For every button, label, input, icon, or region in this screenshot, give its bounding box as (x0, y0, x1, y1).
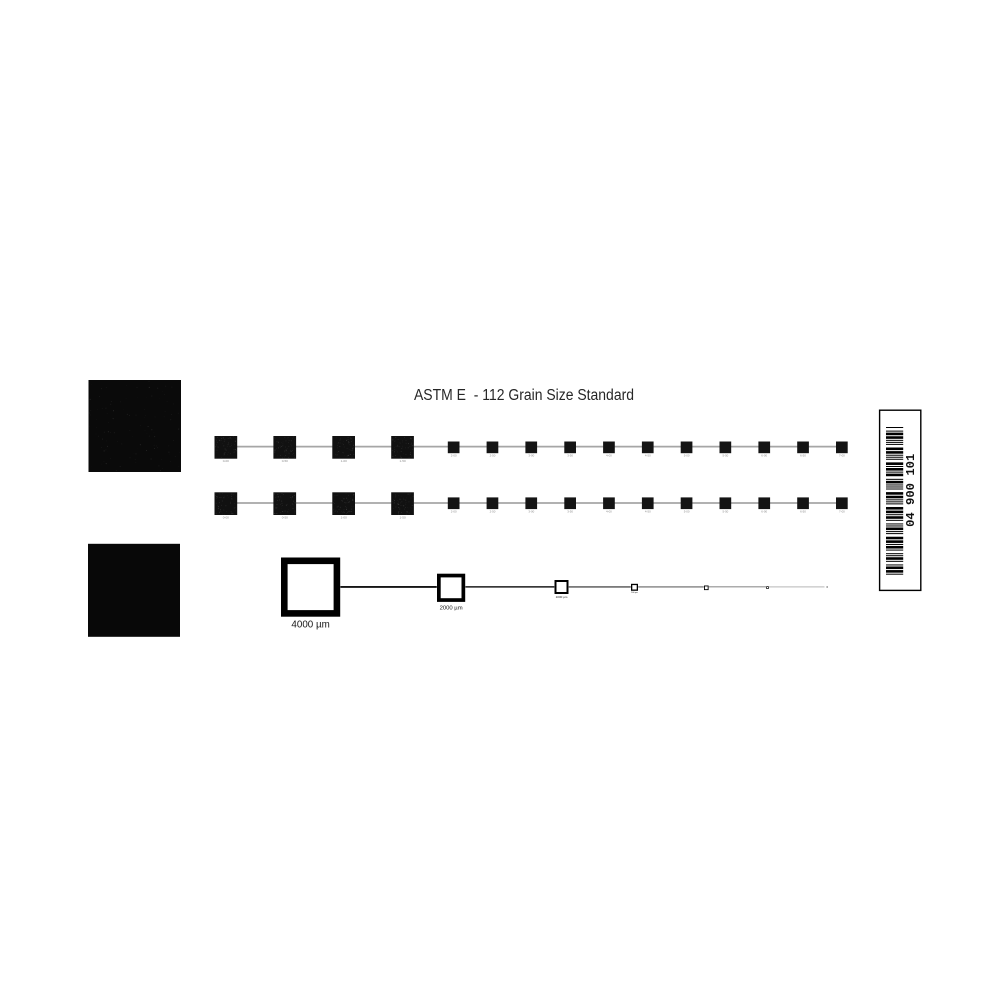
svg-text:6-50: 6-50 (800, 509, 806, 513)
svg-text:3-50: 3-50 (567, 509, 573, 513)
svg-text:7-00: 7-00 (839, 509, 845, 513)
svg-text:2-50: 2-50 (490, 453, 496, 457)
svg-text:0-00: 0-00 (223, 459, 229, 463)
svg-text:7-00: 7-00 (839, 453, 845, 457)
svg-text:1-50: 1-50 (399, 459, 405, 463)
svg-text:500 µm: 500 µm (631, 592, 638, 594)
svg-text:04 900 101: 04 900 101 (904, 454, 918, 527)
svg-text:0-50: 0-50 (282, 459, 288, 463)
svg-text:6-50: 6-50 (800, 453, 806, 457)
svg-text:5-50: 5-50 (723, 509, 729, 513)
svg-text:4-50: 4-50 (645, 453, 651, 457)
svg-text:4-50: 4-50 (645, 509, 651, 513)
svg-text:3-00: 3-00 (528, 509, 534, 513)
svg-text:6-00: 6-00 (761, 509, 767, 513)
svg-text:5-00: 5-00 (684, 509, 690, 513)
svg-text:6-00: 6-00 (761, 453, 767, 457)
svg-text:2000 µm: 2000 µm (440, 606, 463, 612)
svg-text:0-00: 0-00 (223, 515, 229, 519)
svg-text:3-50: 3-50 (567, 453, 573, 457)
svg-text:4000 µm: 4000 µm (291, 620, 329, 631)
svg-text:1-50: 1-50 (399, 515, 405, 519)
svg-text:2-00: 2-00 (451, 453, 457, 457)
svg-text:1-00: 1-00 (341, 515, 347, 519)
svg-text:2-00: 2-00 (451, 509, 457, 513)
svg-text:0-50: 0-50 (282, 515, 288, 519)
svg-text:ASTM E - 112 Grain Size Stand: ASTM E - 112 Grain Size Standard (414, 387, 634, 404)
svg-text:4-00: 4-00 (606, 453, 612, 457)
svg-text:5-50: 5-50 (723, 453, 729, 457)
svg-text:2-50: 2-50 (490, 509, 496, 513)
svg-text:1000 µm: 1000 µm (556, 595, 568, 599)
svg-text:1-00: 1-00 (341, 459, 347, 463)
svg-text:5-00: 5-00 (684, 453, 690, 457)
svg-text:4-00: 4-00 (606, 509, 612, 513)
svg-text:3-00: 3-00 (528, 453, 534, 457)
